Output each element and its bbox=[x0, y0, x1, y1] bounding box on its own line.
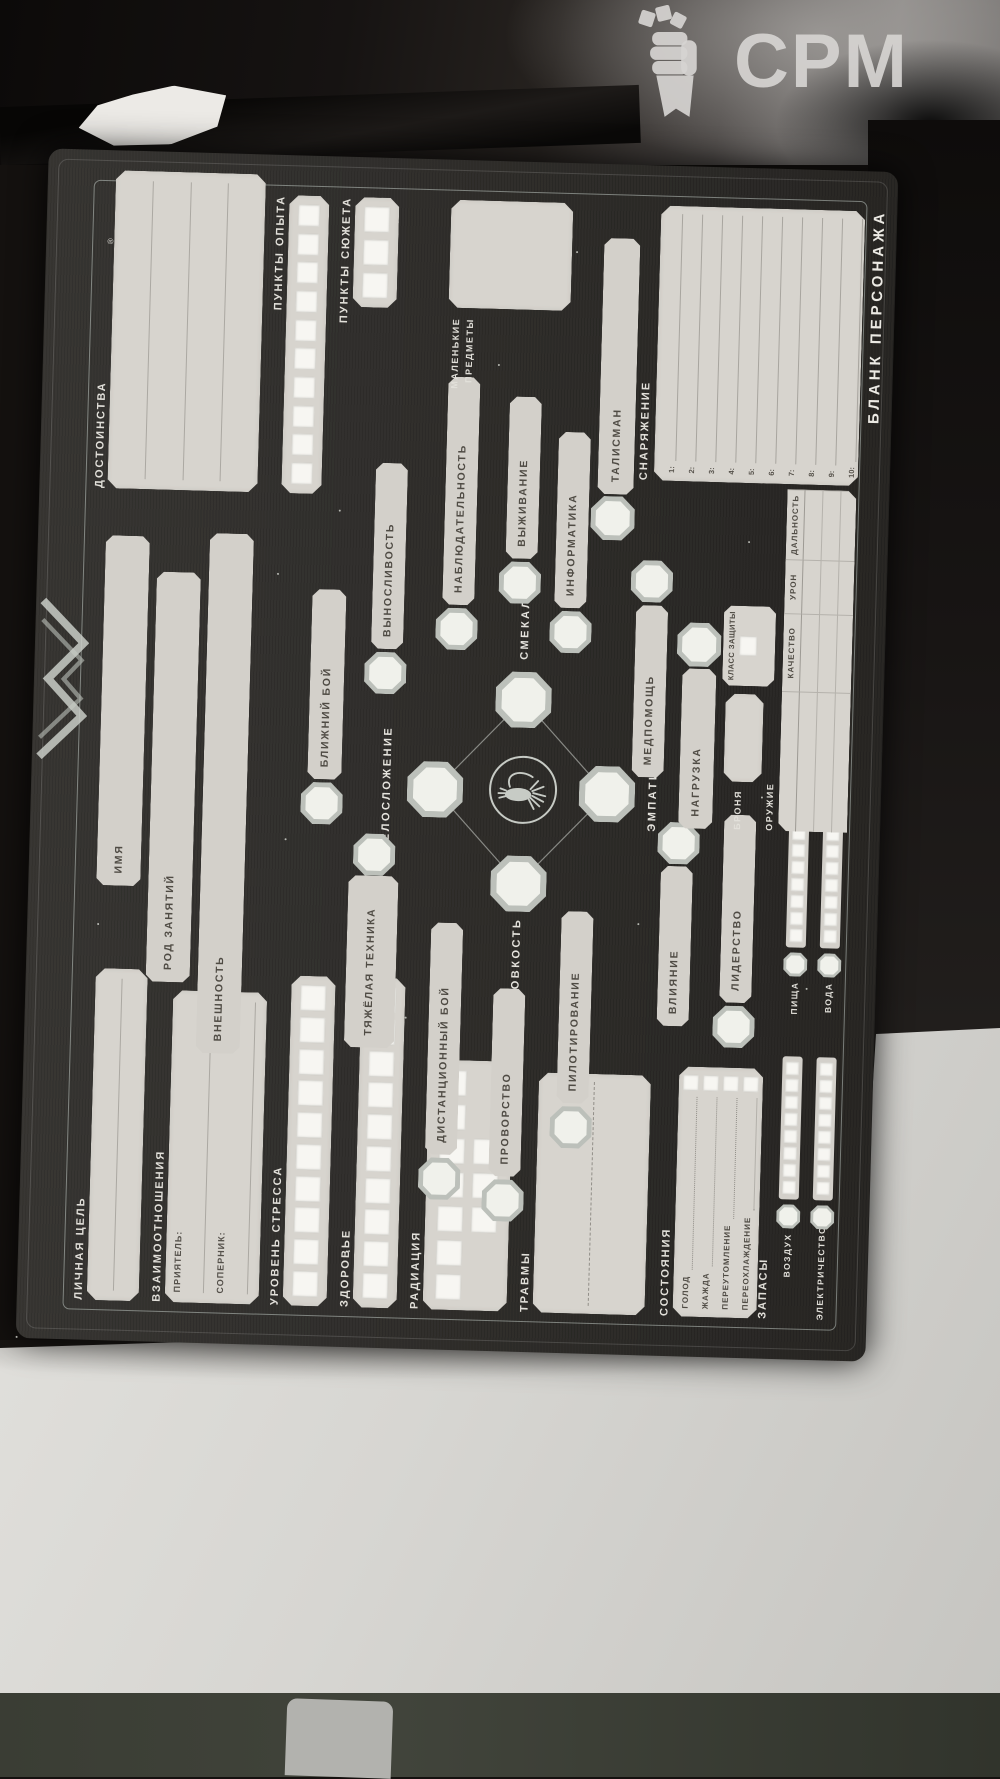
supply-label-power: ЭЛЕКТРИЧЕСТВО bbox=[814, 1234, 826, 1320]
label-conditions: СОСТОЯНИЯ bbox=[658, 1227, 672, 1316]
checkbox bbox=[435, 1274, 462, 1301]
checkbox bbox=[790, 894, 804, 908]
checkbox bbox=[789, 928, 803, 942]
skill-manipulation: ВЛИЯНИЕ bbox=[657, 866, 693, 1027]
checkbox bbox=[364, 1209, 391, 1236]
stress-boxes bbox=[283, 975, 336, 1306]
ruled-line bbox=[112, 979, 122, 1291]
supply-label-food: ПИЩА bbox=[787, 981, 799, 1067]
ruled-line bbox=[182, 182, 191, 480]
checkbox bbox=[368, 1050, 395, 1077]
checkbox bbox=[789, 911, 803, 925]
tiny-items-panel bbox=[448, 200, 573, 311]
raised-fist-icon bbox=[628, 5, 724, 119]
gear-row-number: 8: bbox=[807, 470, 816, 477]
gear-row-number: 7: bbox=[787, 469, 796, 476]
gear-row-number: 2: bbox=[687, 467, 696, 474]
checkbox bbox=[436, 1240, 463, 1267]
checkbox bbox=[824, 895, 838, 909]
gear-row-number: 5: bbox=[747, 468, 756, 475]
checkbox bbox=[292, 1271, 319, 1298]
checkbox bbox=[817, 1130, 831, 1144]
label-weapons: ОРУЖИЕ bbox=[764, 783, 775, 831]
facehugger-emblem bbox=[488, 755, 558, 825]
checkbox bbox=[294, 348, 317, 371]
injuries-panel bbox=[532, 1072, 651, 1315]
skill-mobility: ПРОВОРСТВО bbox=[488, 988, 525, 1177]
condition-label: ЖАЖДА bbox=[700, 1272, 710, 1309]
weapons-table: КАЧЕСТВО УРОН ДАЛЬНОСТЬ bbox=[778, 489, 857, 833]
story-point-boxes bbox=[352, 197, 399, 308]
condition-checkbox bbox=[683, 1074, 699, 1090]
checkbox bbox=[783, 1146, 797, 1160]
checkbox bbox=[363, 1241, 390, 1268]
checkbox bbox=[824, 878, 838, 892]
weapon-cell bbox=[802, 560, 822, 614]
checkbox bbox=[295, 1144, 322, 1171]
checkbox bbox=[300, 985, 327, 1012]
talisman-field: ТАЛИСМАН bbox=[597, 238, 640, 495]
gear-row-number: 3: bbox=[707, 467, 716, 474]
label-buddy: ПРИЯТЕЛЬ: bbox=[172, 1231, 184, 1293]
checkbox bbox=[294, 1207, 321, 1234]
watermark-logo: CPM bbox=[628, 4, 1000, 120]
label-radiation: РАДИАЦИЯ bbox=[409, 1231, 423, 1310]
checkbox bbox=[823, 912, 837, 926]
supply-label-water: ВОДА bbox=[821, 982, 833, 1068]
floor-strip bbox=[0, 1693, 1000, 1777]
checkbox bbox=[790, 877, 804, 891]
checkbox bbox=[298, 204, 321, 227]
character-sheet: ® ЛИЧНАЯ ЦЕЛЬ ВЗАИМООТНОШЕНИЯ ПРИЯТЕЛЬ: … bbox=[16, 148, 899, 1361]
air-value-octagon bbox=[776, 1204, 801, 1229]
registered-mark: ® bbox=[106, 238, 115, 244]
label-injuries: ТРАВМЫ bbox=[518, 1251, 532, 1312]
checkbox bbox=[365, 1146, 392, 1173]
checkbox bbox=[782, 1180, 796, 1194]
checkbox bbox=[791, 860, 805, 874]
armor-rating-box: КЛАСС ЗАЩИТЫ bbox=[722, 605, 776, 686]
skill-stamina: ВЫНОСЛИВОСТЬ bbox=[371, 463, 408, 650]
checkbox bbox=[293, 376, 316, 399]
condition-label: ПЕРЕОХЛАЖДЕНИЕ bbox=[740, 1217, 752, 1311]
condition-label: ПЕРЕУТОМЛЕНИЕ bbox=[720, 1224, 731, 1309]
label-armor: БРОНЯ bbox=[732, 790, 743, 830]
injuries-divider bbox=[588, 1082, 595, 1306]
checkbox bbox=[362, 1273, 389, 1300]
condition-checkbox bbox=[723, 1076, 739, 1092]
supply-label-air: ВОЗДУХ bbox=[780, 1233, 792, 1319]
checkbox bbox=[785, 1078, 799, 1092]
checkbox bbox=[293, 1239, 320, 1266]
checkbox bbox=[784, 1095, 798, 1109]
weapon-cell bbox=[820, 560, 840, 614]
checkbox bbox=[823, 929, 837, 943]
ruled-line bbox=[220, 183, 229, 481]
checkbox bbox=[816, 1181, 830, 1195]
power-value-octagon bbox=[810, 1205, 835, 1230]
gear-row-number: 10: bbox=[847, 467, 856, 478]
skill-medical-aid: МЕДПОМОЩЬ bbox=[631, 605, 668, 778]
skill-command: ЛИДЕРСТВО bbox=[719, 814, 756, 1003]
skill-piloting: ПИЛОТИРОВАНИЕ bbox=[556, 911, 593, 1104]
checkbox bbox=[437, 1206, 464, 1233]
xp-boxes bbox=[281, 195, 329, 494]
checkbox bbox=[364, 1177, 391, 1204]
armor-panel bbox=[723, 693, 763, 782]
skill-survival: ВЫЖИВАНИЕ bbox=[506, 396, 543, 559]
armor-rating-checkbox bbox=[739, 636, 758, 656]
checkbox bbox=[296, 262, 319, 285]
checkbox bbox=[296, 1112, 323, 1139]
checkbox bbox=[782, 1163, 796, 1177]
watermark-brand: CPM bbox=[734, 24, 909, 100]
food-value-octagon bbox=[783, 952, 808, 977]
weapon-cell bbox=[804, 490, 824, 560]
skill-comtech: ИНФОРМАТИКА bbox=[554, 432, 591, 609]
weapons-damage-header: УРОН bbox=[784, 559, 804, 613]
checkbox bbox=[295, 290, 318, 313]
checkbox bbox=[816, 1164, 830, 1178]
weapon-cell bbox=[800, 614, 820, 692]
checkbox bbox=[298, 1048, 325, 1075]
weapons-range-header: ДАЛЬНОСТЬ bbox=[786, 489, 806, 559]
checkbox bbox=[362, 272, 389, 299]
checkbox bbox=[292, 405, 315, 428]
checkbox bbox=[366, 1114, 393, 1141]
label-tiny-items: МАЛЕНЬКИЕ ПРЕДМЕТЫ bbox=[447, 318, 477, 431]
talents-panel bbox=[107, 170, 266, 492]
checkbox bbox=[783, 1129, 797, 1143]
weapon-cell bbox=[818, 614, 838, 692]
label-health: ЗДОРОВЬЕ bbox=[339, 1229, 353, 1308]
checkbox bbox=[825, 861, 839, 875]
label-supplies: ЗАПАСЫ bbox=[756, 1258, 770, 1319]
checkbox bbox=[818, 1113, 832, 1127]
checkbox bbox=[819, 1079, 833, 1093]
checkbox bbox=[363, 239, 390, 266]
checkbox bbox=[291, 434, 314, 457]
checkbox bbox=[297, 1080, 324, 1107]
ruled-line bbox=[144, 181, 153, 479]
condition-checkbox bbox=[703, 1075, 719, 1091]
checkbox bbox=[297, 233, 320, 256]
floor-object bbox=[285, 1698, 394, 1779]
condition-label: ГОЛОД bbox=[680, 1276, 690, 1309]
power-tick-boxes bbox=[813, 1057, 837, 1201]
checkbox bbox=[825, 844, 839, 858]
weapon-cell bbox=[822, 490, 842, 560]
checkbox bbox=[784, 1112, 798, 1126]
skill-heavy-machinery: ТЯЖЁЛАЯ ТЕХНИКА bbox=[344, 875, 399, 1048]
checkbox bbox=[290, 462, 313, 485]
checkbox bbox=[817, 1147, 831, 1161]
gear-row-number: 4: bbox=[727, 468, 736, 475]
conditions-panel: ГОЛОД ЖАЖДА ПЕРЕУТОМЛЕНИЕ ПЕРЕОХЛАЖДЕНИЕ bbox=[672, 1066, 763, 1318]
checkbox bbox=[367, 1082, 394, 1109]
checkbox bbox=[294, 319, 317, 342]
gear-row-number: 9: bbox=[827, 471, 836, 478]
gear-row-number: 1: bbox=[667, 466, 676, 473]
weyland-yutani-logo bbox=[33, 583, 90, 774]
rival-line bbox=[247, 1002, 256, 1294]
skill-close-combat: БЛИЖНИЙ БОЙ bbox=[307, 589, 346, 780]
personal-goal-panel bbox=[87, 968, 148, 1301]
air-tick-boxes bbox=[779, 1056, 803, 1200]
facehugger-icon bbox=[490, 761, 552, 823]
starfield-dots bbox=[16, 1336, 18, 1338]
gear-panel: 1:2:3:4:5:6:7:8:9:10: bbox=[654, 205, 866, 486]
checkbox bbox=[364, 206, 391, 233]
label-rival: СОПЕРНИК: bbox=[215, 1231, 227, 1293]
checkbox bbox=[791, 843, 805, 857]
gear-row-number: 6: bbox=[767, 469, 776, 476]
checkbox bbox=[294, 1175, 321, 1202]
checkbox bbox=[299, 1017, 326, 1044]
checkbox bbox=[818, 1096, 832, 1110]
encumbrance-field: НАГРУЗКА bbox=[678, 668, 716, 829]
weapons-quality-header: КАЧЕСТВО bbox=[782, 613, 802, 691]
skill-ranged-combat: ДИСТАНЦИОННЫЙ БОЙ bbox=[425, 922, 463, 1155]
label-armor-rating: КЛАСС ЗАЩИТЫ bbox=[726, 611, 737, 680]
water-value-octagon bbox=[817, 953, 842, 978]
condition-checkbox bbox=[743, 1076, 759, 1092]
